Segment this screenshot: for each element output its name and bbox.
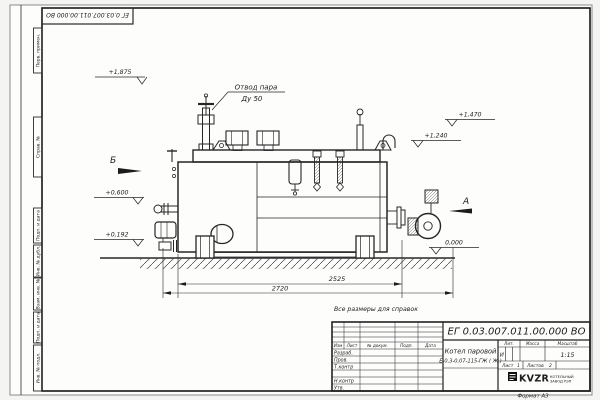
view-b-label: Б [110, 156, 116, 166]
margin-label-podp-data-2: Подп. и дата [35, 312, 41, 343]
col-izm: Изм [334, 343, 343, 348]
lit-label: Лит. [503, 341, 514, 346]
view-a-label: А [462, 197, 469, 207]
logo-subtext-2: ЗАВОД РЭП [550, 380, 572, 384]
format-note: Формат А3 [517, 394, 549, 400]
dim-outer-label: 2720 [272, 285, 289, 293]
elevation-left-upper: +0,600 [106, 190, 129, 197]
col-list: Лист [346, 343, 358, 348]
kvzr-logo-text: KVZR [519, 374, 550, 385]
role-utv: Утв. [334, 386, 344, 392]
scale-label: Масштаб [558, 341, 578, 346]
role-tkontr: Т.контр [334, 365, 353, 371]
scale-value: 1:15 [561, 352, 575, 359]
role-prov: Пров. [334, 358, 348, 364]
role-razrab: Разраб. [334, 351, 353, 357]
logo-subtext-1: КОТЕЛЬНЫЙ [550, 374, 574, 379]
sheet-label: Лист [501, 363, 514, 369]
corner-stamp-text: ЕГ 0.03.007.011.00.000 ВО [46, 11, 129, 18]
reference-note: Все размеры для справок [334, 306, 418, 313]
sheet-value: 1 [517, 363, 520, 369]
kvzr-logo-icon [508, 372, 517, 381]
col-podp: Подп. [400, 343, 413, 348]
margin-label-podp-data-1: Подп. и дата [35, 210, 41, 241]
dim-inner-label: 2525 [329, 275, 346, 283]
margin-label-perv-primen: Перв. примен. [35, 34, 41, 68]
doc-number: ЕГ 0.03.007.011.00.000 ВО [448, 327, 586, 338]
callout-dn50: Ду 50 [241, 95, 263, 103]
elevation-right-mid: +1,240 [425, 133, 448, 140]
col-dokum: № докум. [366, 343, 388, 348]
lit-value: И [500, 353, 504, 359]
sheets-value: 2 [549, 363, 552, 369]
elevation-ground: 0,000 [445, 240, 463, 247]
elevation-left-lower: +0,192 [106, 232, 129, 239]
margin-label-inv-podl: Инв. № подл. [35, 352, 41, 383]
sheets-label: Листов [526, 363, 544, 369]
role-nkontr: Н.контр [334, 379, 354, 385]
margin-label-inv-dubl: Инв. № дубл. [35, 246, 41, 277]
margin-label-vzam-inv: Взам. инв. № [35, 278, 41, 309]
mass-label: Масса [526, 341, 540, 346]
col-data: Дата [424, 343, 436, 348]
blueprint-sheet: ЕГ 0.03.007.011.00.000 ВО Перв. примен. … [0, 0, 600, 400]
elevation-top: +1,875 [109, 69, 132, 76]
product-model: Е-0,3-0,07-115-ГЖ ( Ж ) [439, 359, 501, 365]
margin-label-sprav-no: Справ. № [35, 136, 41, 158]
callout-steam-outlet: Отвод пара [235, 84, 278, 92]
product-name: Котел паровой [445, 348, 497, 356]
elevation-right-upper: +1,470 [459, 112, 482, 119]
